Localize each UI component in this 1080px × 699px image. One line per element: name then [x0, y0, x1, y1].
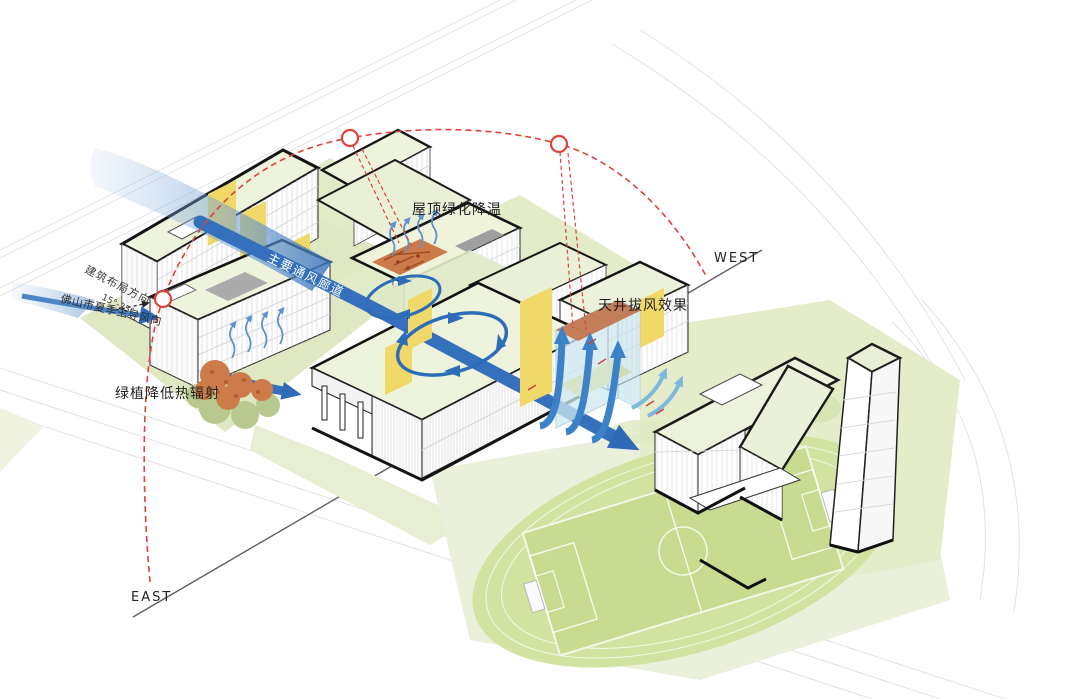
axonometric-canvas: 屋顶绿化降温 天井拔风效果 绿植降低热辐射 主要通风廊道 建筑布局方向 15°-… [0, 0, 1080, 699]
label-atrium-stack: 天井拔风效果 [598, 298, 688, 314]
east-label: EAST [131, 590, 172, 605]
sun-marker-west [551, 136, 567, 152]
sun-marker-east [155, 291, 171, 307]
label-greenery-radiation: 绿植降低热辐射 [115, 386, 220, 402]
west-label: WEST [714, 251, 759, 266]
sun-marker-mid [342, 130, 358, 146]
label-roof-greening: 屋顶绿化降温 [412, 202, 502, 218]
campus-ventilation-diagram: 屋顶绿化降温 天井拔风效果 绿植降低热辐射 主要通风廊道 建筑布局方向 15°-… [0, 0, 1080, 699]
